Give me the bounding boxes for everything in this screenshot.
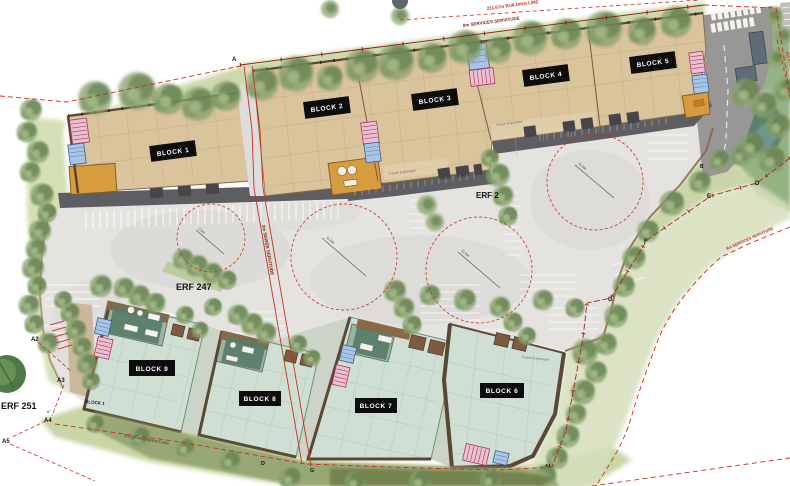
svg-text:F: F xyxy=(644,239,648,245)
svg-text:BLOCK 9: BLOCK 9 xyxy=(136,366,169,373)
svg-text:G: G xyxy=(310,468,314,474)
svg-text:B: B xyxy=(700,164,704,170)
svg-text:E: E xyxy=(707,194,711,200)
svg-text:BLOCK 6: BLOCK 6 xyxy=(486,388,519,395)
svg-text:A: A xyxy=(232,57,237,63)
svg-text:A5: A5 xyxy=(2,439,10,445)
svg-text:A1: A1 xyxy=(545,463,551,468)
svg-text:G: G xyxy=(608,297,613,303)
svg-text:D: D xyxy=(261,461,265,467)
svg-text:ERF 251: ERF 251 xyxy=(1,401,37,411)
svg-text:ERF 2: ERF 2 xyxy=(476,191,499,200)
svg-text:6°: 6° xyxy=(47,409,51,414)
svg-text:D: D xyxy=(755,181,760,187)
svg-text:BLOCK 7: BLOCK 7 xyxy=(360,403,393,410)
svg-text:ERF 247: ERF 247 xyxy=(176,282,212,292)
svg-text:A3: A3 xyxy=(57,378,65,384)
svg-text:BLOCK 8: BLOCK 8 xyxy=(244,396,277,403)
